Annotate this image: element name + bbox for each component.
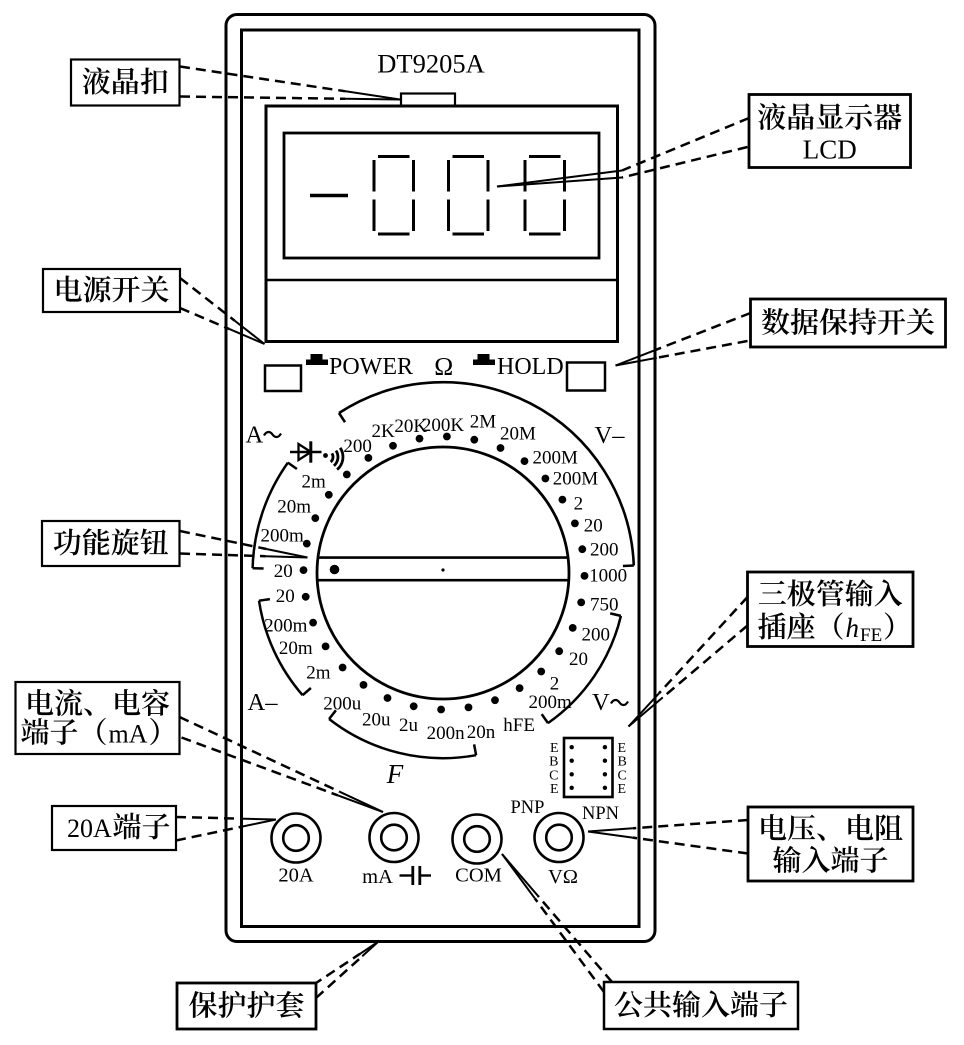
svg-text:20A: 20A	[67, 814, 112, 843]
svg-text:LCD: LCD	[803, 135, 857, 165]
svg-text:20M: 20M	[500, 423, 536, 444]
svg-text:Ω: Ω	[434, 352, 453, 381]
svg-text:200M: 200M	[532, 448, 578, 469]
svg-text:20: 20	[274, 561, 293, 582]
svg-text:POWER: POWER	[329, 354, 413, 380]
svg-text:20n: 20n	[467, 722, 496, 743]
svg-text:FE: FE	[860, 625, 882, 646]
svg-text:20m: 20m	[279, 638, 313, 659]
svg-text:200m: 200m	[264, 616, 308, 637]
svg-text:200: 200	[581, 624, 610, 645]
svg-text:200: 200	[343, 436, 372, 457]
svg-text:PNP: PNP	[511, 798, 545, 818]
svg-text:200K: 200K	[422, 415, 465, 436]
svg-text:200u: 200u	[323, 694, 362, 715]
svg-text:mA: mA	[109, 720, 148, 749]
svg-text:NPN: NPN	[582, 804, 619, 824]
svg-text:2m: 2m	[302, 471, 327, 492]
svg-text:F: F	[386, 759, 404, 789]
svg-text:200n: 200n	[427, 723, 466, 744]
svg-text:2: 2	[574, 493, 584, 514]
svg-text:20: 20	[584, 515, 603, 536]
svg-text:A: A	[246, 422, 264, 449]
svg-text:E: E	[550, 782, 559, 797]
svg-text:2M: 2M	[470, 412, 497, 433]
svg-text:hFE: hFE	[503, 715, 535, 736]
svg-text:20A: 20A	[278, 865, 314, 887]
svg-text:1000: 1000	[589, 566, 627, 587]
svg-text:A–: A–	[248, 689, 279, 716]
svg-text:V: V	[592, 689, 610, 716]
svg-text:V–: V–	[595, 422, 626, 449]
svg-text:VΩ: VΩ	[548, 866, 578, 888]
svg-text:2u: 2u	[399, 715, 419, 736]
svg-text:mA: mA	[362, 866, 393, 888]
svg-text:2m: 2m	[306, 663, 331, 684]
svg-text:DT9205A: DT9205A	[377, 49, 484, 79]
svg-text:E: E	[618, 782, 627, 797]
svg-text:20m: 20m	[277, 497, 311, 518]
svg-text:200m: 200m	[260, 526, 304, 547]
svg-text:200M: 200M	[553, 468, 599, 489]
svg-text:200: 200	[590, 539, 619, 560]
svg-text:750: 750	[590, 594, 619, 615]
svg-text:2K: 2K	[371, 421, 395, 442]
svg-text:HOLD: HOLD	[497, 354, 564, 380]
svg-text:COM: COM	[455, 865, 502, 887]
svg-text:h: h	[846, 613, 860, 643]
svg-text:20: 20	[276, 586, 295, 607]
svg-text:20: 20	[569, 649, 588, 670]
svg-text:20u: 20u	[362, 710, 391, 731]
